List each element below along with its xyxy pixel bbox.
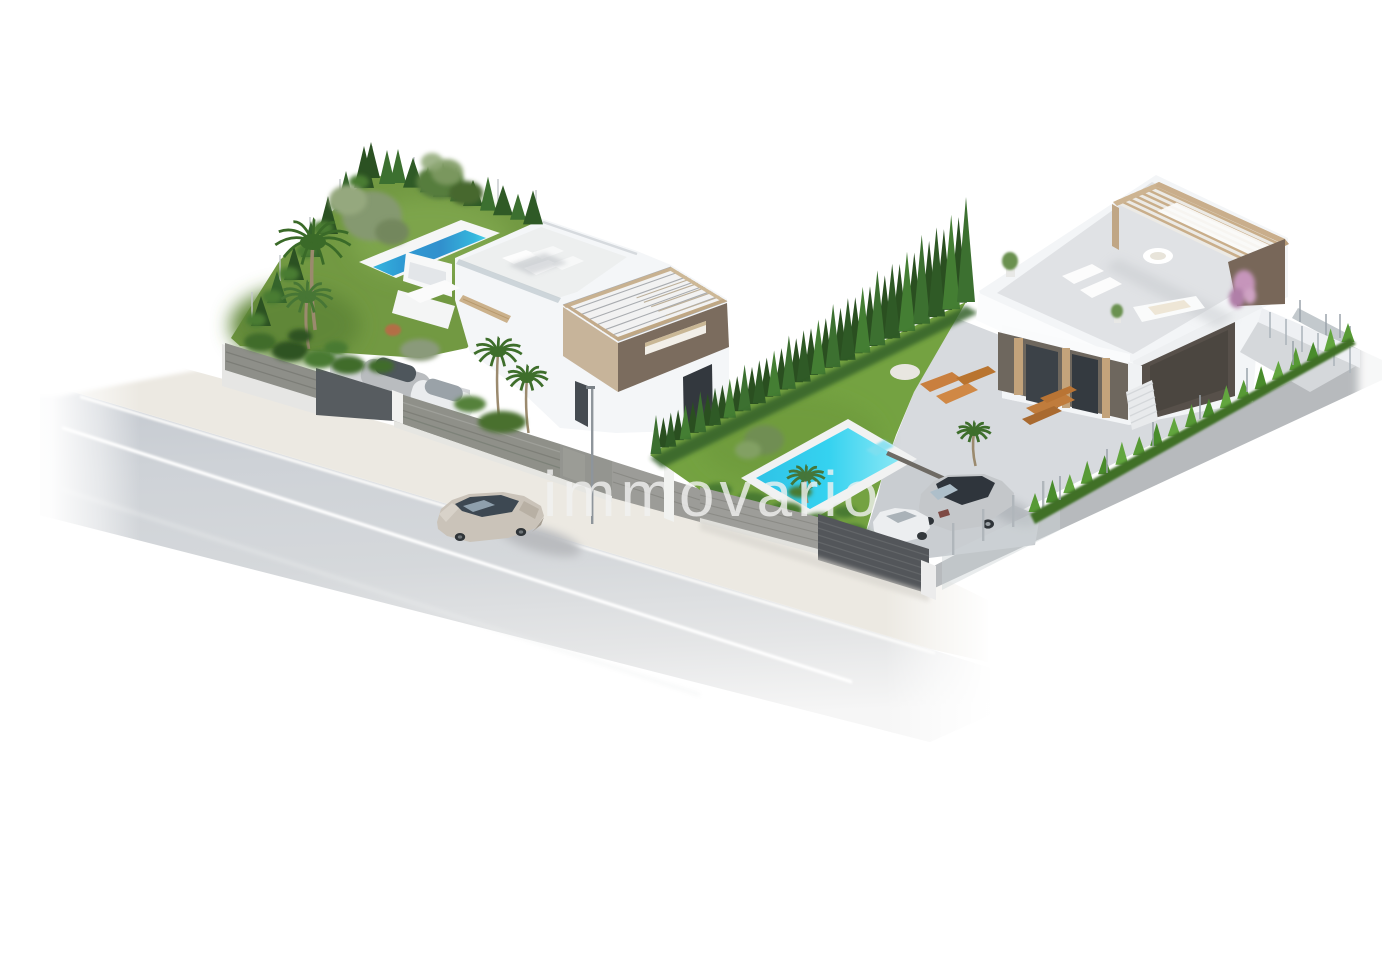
svg-text:immovario: immovario (543, 458, 883, 530)
